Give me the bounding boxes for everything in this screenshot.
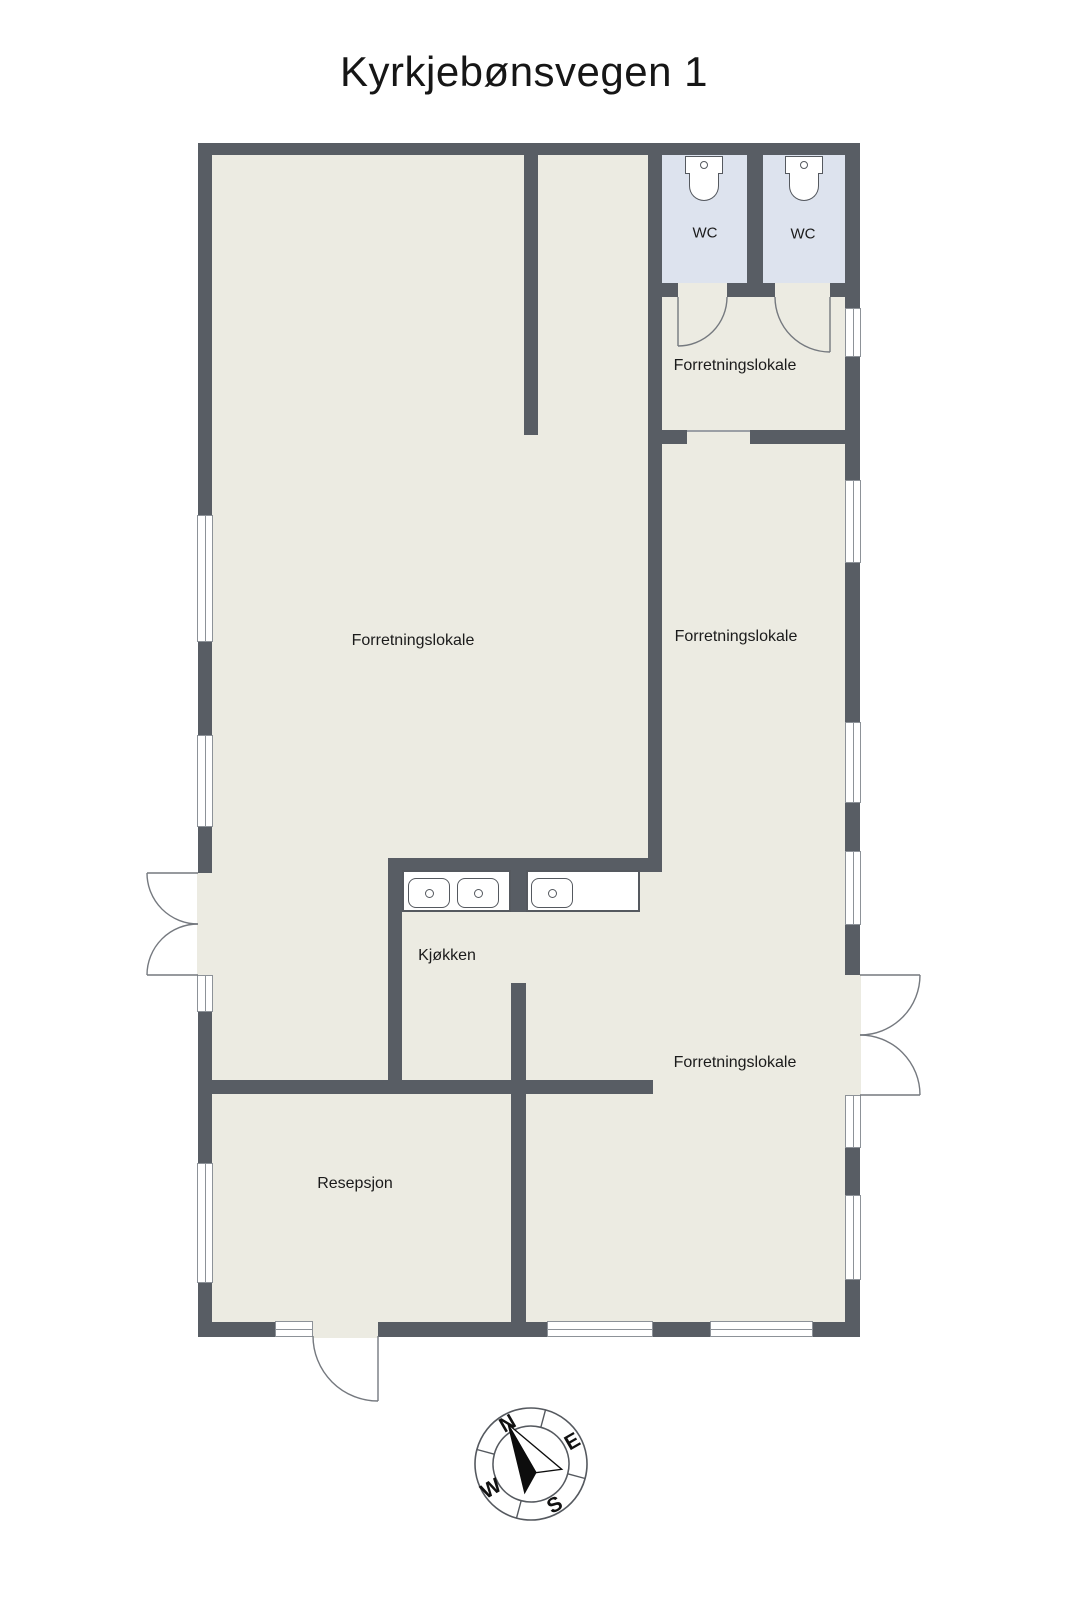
- room-opening: [687, 430, 750, 444]
- door-swing: [147, 873, 198, 924]
- door-swing: [860, 975, 920, 1035]
- wc1-door-opening: [678, 283, 727, 297]
- window: [197, 1163, 213, 1283]
- toilet-icon: [685, 156, 723, 174]
- door-swing: [860, 1035, 920, 1095]
- window: [547, 1321, 653, 1337]
- wall: [648, 155, 662, 872]
- toilet-icon: [785, 156, 823, 174]
- room-label-upper-right: Forretningslokale: [674, 357, 797, 375]
- room-label-lower-right: Forretningslokale: [674, 1054, 797, 1072]
- window: [845, 722, 861, 803]
- wall: [511, 983, 526, 1322]
- sink-icon: [408, 878, 450, 908]
- compass-divider: [534, 1410, 551, 1427]
- compass-divider: [510, 1501, 527, 1518]
- window: [197, 515, 213, 642]
- window: [197, 735, 213, 827]
- window: [845, 1095, 861, 1148]
- window: [710, 1321, 813, 1337]
- compass-needle: [491, 1424, 542, 1493]
- compass-east-label: E: [561, 1428, 585, 1455]
- window: [275, 1321, 313, 1337]
- wall: [198, 143, 860, 155]
- right-double-door-opening: [844, 975, 861, 1095]
- room-label-kitchen: Kjøkken: [418, 947, 476, 965]
- compass-needle: [508, 1412, 562, 1481]
- compass-inner-circle: [479, 1412, 583, 1516]
- opening-lintel: [687, 430, 750, 432]
- wall: [511, 858, 526, 912]
- room-label-reception: Resepsjon: [317, 1175, 393, 1193]
- compass-divider: [477, 1443, 494, 1460]
- compass-north-label: N: [495, 1410, 520, 1438]
- entrance-door-opening: [313, 1321, 378, 1338]
- room-label-wc2: WC: [791, 226, 816, 243]
- door-swing: [313, 1336, 378, 1401]
- window: [845, 851, 861, 925]
- window: [845, 308, 861, 357]
- compass-west-label: W: [477, 1474, 506, 1504]
- sink-icon: [531, 878, 573, 908]
- wall: [212, 1080, 653, 1094]
- door-swing: [147, 924, 198, 975]
- window: [197, 975, 213, 1012]
- room-label-main: Forretningslokale: [352, 632, 475, 650]
- wall: [747, 155, 763, 283]
- window: [845, 480, 861, 563]
- wc2-door-opening: [775, 283, 830, 297]
- floorplan-page: Kyrkjebønsvegen 1: [0, 0, 1067, 1600]
- compass-outer-circle: [455, 1388, 608, 1541]
- window: [845, 1195, 861, 1280]
- compass-divider: [568, 1467, 585, 1484]
- room-label-wc1: WC: [693, 225, 718, 242]
- page-title: Kyrkjebønsvegen 1: [340, 48, 708, 96]
- wall: [388, 858, 402, 1094]
- sink-icon: [457, 878, 499, 908]
- left-double-door-opening: [197, 873, 213, 975]
- room-label-middle-right: Forretningslokale: [675, 628, 798, 646]
- compass-south-label: S: [543, 1492, 567, 1519]
- compass-rose: N E S W: [451, 1384, 611, 1544]
- wall: [524, 155, 538, 435]
